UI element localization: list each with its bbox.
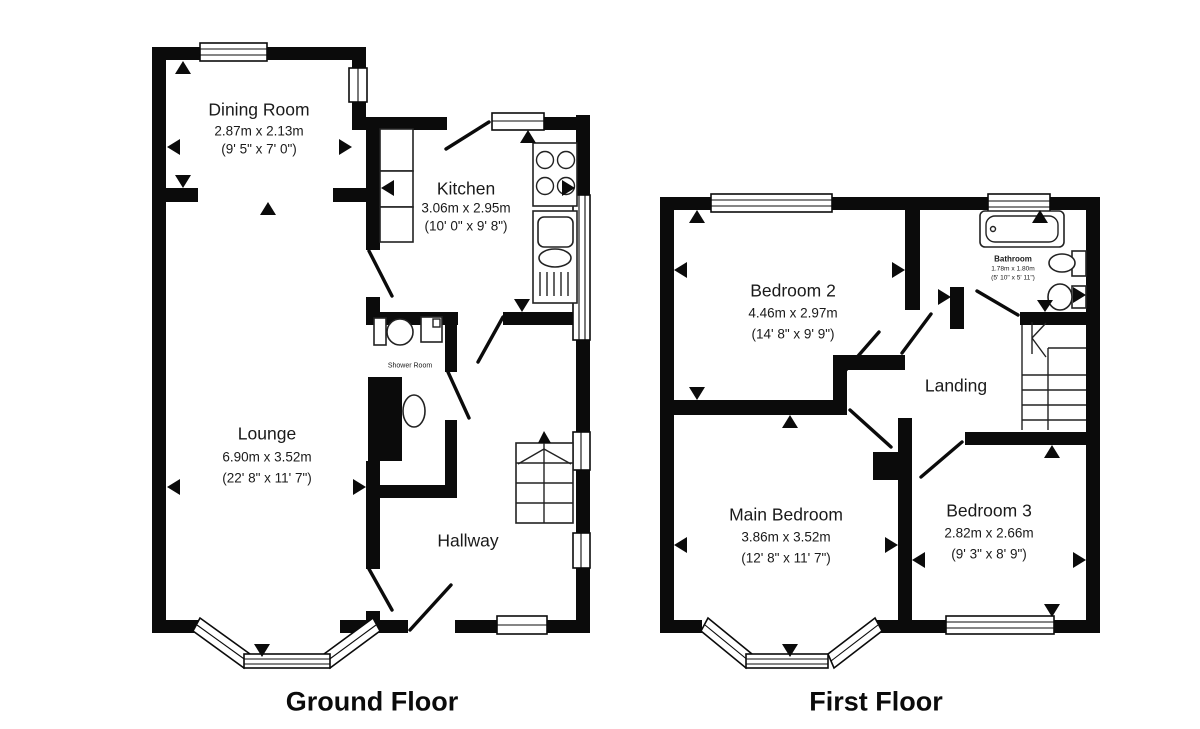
door-lounge-kitchen <box>369 251 392 296</box>
room-label-shower-room: Shower Room <box>388 363 432 370</box>
room-dim-metric-kitchen: 3.06m x 2.95m <box>421 201 510 216</box>
room-label-bedroom2: Bedroom 2 <box>750 281 836 302</box>
door-kitchen-hall <box>478 317 503 362</box>
room-dim-imperial-main-bedroom: (12' 8" x 11' 7") <box>741 551 831 566</box>
room-dim-imperial-dining: (9' 5" x 7' 0") <box>221 142 297 157</box>
room-dim-metric-bathroom: 1.78m x 1.80m <box>991 266 1035 273</box>
door-bedroom3 <box>921 442 962 477</box>
sink-unit-icon <box>533 211 577 303</box>
room-dim-metric-main-bedroom: 3.86m x 3.52m <box>741 530 830 545</box>
shower-tray-icon <box>421 317 442 342</box>
window-bedroom2-top <box>711 194 832 212</box>
room-dim-metric-bedroom2: 4.46m x 2.97m <box>748 306 837 321</box>
first-floor-title: First Floor <box>809 687 943 718</box>
room-label-lounge: Lounge <box>238 424 296 445</box>
window-hall-right-upper <box>573 432 590 470</box>
door-main-bedroom <box>850 410 891 447</box>
window-hall-right-lower <box>573 533 590 568</box>
room-label-kitchen: Kitchen <box>437 179 495 200</box>
window-dining-side <box>349 68 367 102</box>
stairs-icon-first <box>1022 322 1086 430</box>
ground-floor-title: Ground Floor <box>286 687 458 718</box>
hob-icon <box>533 143 577 206</box>
door-shower-room <box>448 372 469 418</box>
room-dim-imperial-bedroom3: (9' 3" x 8' 9") <box>951 547 1027 562</box>
sink-icon <box>1049 251 1086 276</box>
room-dim-imperial-bathroom: (5' 10" x 5' 11") <box>991 275 1035 282</box>
chimney-breast <box>873 452 898 480</box>
room-dim-imperial-lounge: (22' 8" x 11' 7") <box>222 471 312 486</box>
bay-window-main-bedroom <box>701 618 882 668</box>
toilet-icon <box>374 318 413 345</box>
room-dim-metric-bedroom3: 2.82m x 2.66m <box>944 526 1033 541</box>
door-front <box>410 585 451 630</box>
room-dim-imperial-kitchen: (10' 0" x 9' 8") <box>424 219 507 234</box>
bathtub-icon <box>980 211 1064 247</box>
window-hall-bottom <box>497 616 547 634</box>
door-bathroom <box>977 291 1018 315</box>
room-label-main-bedroom: Main Bedroom <box>729 505 843 526</box>
room-dim-metric-lounge: 6.90m x 3.52m <box>222 450 311 465</box>
stairs-icon-ground <box>516 431 573 523</box>
room-label-dining: Dining Room <box>208 100 309 121</box>
basin-icon <box>403 395 425 427</box>
floorplan-page: Dining Room 2.87m x 2.13m (9' 5" x 7' 0"… <box>0 0 1200 729</box>
kitchen-units <box>380 129 413 242</box>
room-label-bathroom: Bathroom <box>994 255 1032 264</box>
door-kitchen-top <box>446 122 489 149</box>
room-dim-imperial-bedroom2: (14' 8" x 9' 9") <box>751 327 834 342</box>
room-label-hallway: Hallway <box>437 531 498 552</box>
door-bedroom2-b <box>902 314 931 353</box>
window-kitchen-top <box>492 113 544 130</box>
room-dim-metric-dining: 2.87m x 2.13m <box>214 124 303 139</box>
door-lounge <box>369 569 392 610</box>
room-label-landing: Landing <box>925 376 987 397</box>
window-dining-top <box>200 43 267 61</box>
floorplan-drawing <box>0 0 1200 729</box>
window-bedroom3-bottom <box>946 616 1054 634</box>
window-bathroom-top <box>988 194 1050 212</box>
chimney-breast <box>368 377 402 461</box>
room-label-bedroom3: Bedroom 3 <box>946 501 1032 522</box>
